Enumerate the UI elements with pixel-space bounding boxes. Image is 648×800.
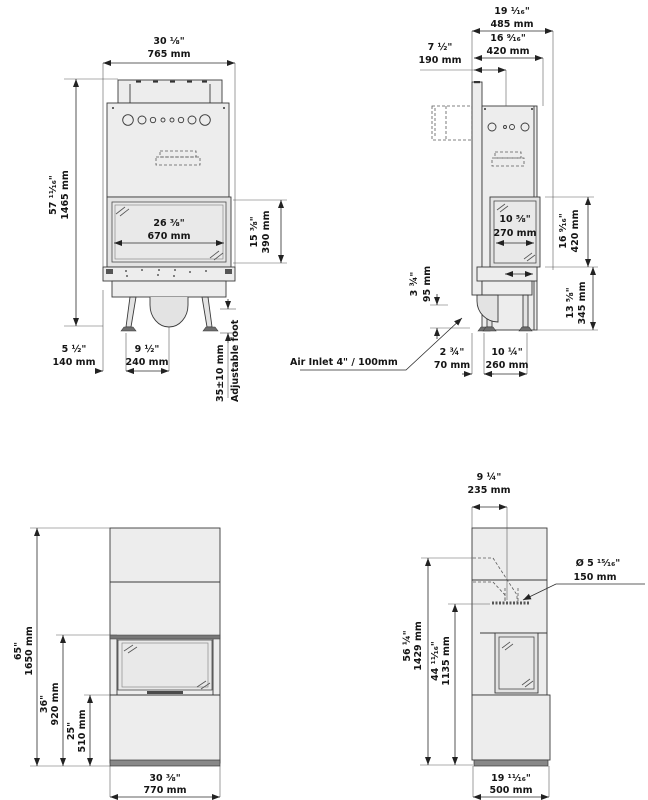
surround-depth-in: 19 ¹¹⁄₁₆" (491, 773, 531, 784)
side-foot-spacing-mm: 260 mm (486, 360, 529, 371)
flue-offset-in: 9 ¼" (477, 472, 502, 483)
opening-bottom-mm: 510 mm (77, 709, 88, 752)
surround-width-in: 30 ⅜" (149, 773, 180, 784)
unit-body (107, 103, 229, 197)
side-base-height-mm: 345 mm (577, 281, 588, 324)
surround-height-mm: 1650 mm (24, 626, 35, 676)
flue-height-mm: 1429 mm (413, 621, 424, 671)
plinth (103, 267, 235, 281)
surround-depth-mm: 500 mm (490, 785, 533, 796)
side-body-depth-in: 16 ⁹⁄₁₆" (490, 33, 526, 44)
air-inlet-dome (150, 297, 188, 327)
front-overall-height-in: 57 ¹¹⁄₁₆" (48, 175, 59, 215)
side-overall-depth-in: 19 ¹⁄₁₆" (494, 6, 530, 17)
side-body-depth-mm: 420 mm (487, 46, 530, 57)
front-overall-height-mm: 1465 mm (60, 170, 71, 220)
front-foot-inset-mm: 140 mm (53, 357, 96, 368)
left-leg (126, 297, 136, 327)
left-foot (121, 327, 136, 331)
side-glass-height-in: 16 ⁹⁄₁₆" (558, 213, 569, 249)
flue-offset-mm: 235 mm (468, 485, 511, 496)
air-inlet-label: Air Inlet 4" / 100mm (290, 357, 398, 368)
front-overall-width-in: 30 ⅛" (153, 36, 184, 47)
surround-front-view: 65" 1650 mm 36" 920 mm 25" 510 mm 30 ⅜" … (13, 528, 220, 797)
side-glass-width-in: 10 ⅝" (499, 214, 530, 225)
technical-drawing: 30 ⅛" 765 mm 57 ¹¹⁄₁₆" 1465 mm 26 ⅜" 670… (0, 0, 648, 800)
firebox-top-height-mm: 1135 mm (441, 636, 452, 686)
convection-top-box (118, 80, 222, 103)
adjustable-foot-range: 35±10 mm (215, 344, 226, 402)
drawing-page: 30 ⅛" 765 mm 57 ¹¹⁄₁₆" 1465 mm 26 ⅜" 670… (0, 0, 648, 800)
side-base-height-in: 13 ⅝" (565, 287, 576, 318)
right-leg (202, 297, 212, 327)
front-panel-edge (472, 82, 482, 295)
surround-side-glass (499, 637, 534, 689)
baseboard (110, 760, 220, 766)
inlet-clearance-in: 3 ¾" (409, 272, 420, 297)
rear-duct-dashed (432, 106, 472, 140)
front-glass-width-mm: 670 mm (148, 231, 191, 242)
side-glass-width-mm: 270 mm (494, 228, 537, 239)
flue-diameter-mm: 150 mm (574, 572, 617, 583)
adjustable-foot-label: Adjustable foot (230, 319, 241, 402)
side-base (482, 281, 532, 295)
opening-top-mm: 920 mm (50, 682, 61, 725)
opening-bottom-in: 25" (66, 722, 77, 740)
surround-glass (118, 640, 212, 690)
side-top-depth-mm: 190 mm (419, 55, 462, 66)
front-foot-spacing-mm: 240 mm (126, 357, 169, 368)
firebox-top-height-in: 44 ¹¹⁄₁₆" (430, 641, 441, 681)
right-foot (203, 327, 218, 331)
side-air-duct (477, 295, 498, 322)
flue-height-in: 56 ¼" (402, 630, 413, 661)
side-top-depth-in: 7 ½" (428, 42, 453, 53)
side-overall-depth-mm: 485 mm (491, 19, 534, 30)
front-view: 30 ⅛" 765 mm 57 ¹¹⁄₁₆" 1465 mm 26 ⅜" 670… (48, 36, 287, 402)
door-handle (147, 691, 183, 694)
front-foot-inset-in: 5 ½" (62, 344, 87, 355)
side-baseboard (474, 760, 548, 766)
side-glass-height-mm: 420 mm (570, 209, 581, 252)
side-foot-spacing-in: 10 ¼" (491, 347, 522, 358)
surround-width-mm: 770 mm (144, 785, 187, 796)
flue-diameter-in: Ø 5 ¹⁵⁄₁₆" (576, 558, 621, 569)
front-glass-width-in: 26 ⅜" (153, 218, 184, 229)
opening-top-strip (110, 635, 220, 639)
side-rear-leg (523, 295, 528, 327)
inlet-clearance-mm: 95 mm (422, 266, 433, 302)
front-foot-offset-mm: 70 mm (434, 360, 470, 371)
front-foot-spacing-in: 9 ½" (135, 344, 160, 355)
side-view: 10 ⅝" 270 mm 19 ¹⁄₁₆" 485 mm 16 ⁹⁄₁₆" 42… (290, 6, 598, 374)
opening-top-in: 36" (39, 695, 50, 713)
surround-side-base (472, 695, 550, 760)
surround-height-in: 65" (13, 642, 24, 660)
front-glass-height-in: 15 ⅜" (249, 216, 260, 247)
front-overall-width-mm: 765 mm (148, 49, 191, 60)
surround-side-view: 9 ¼" 235 mm Ø 5 ¹⁵⁄₁₆" 150 mm 56 ¼" 1429… (402, 472, 645, 797)
front-foot-offset-in: 2 ¾" (440, 347, 465, 358)
base-box (112, 281, 226, 297)
front-glass-height-mm: 390 mm (261, 210, 272, 253)
